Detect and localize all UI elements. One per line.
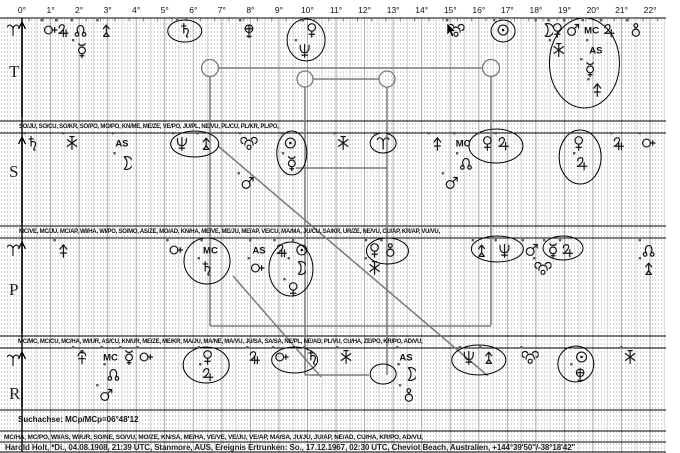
poseidon-icon — [535, 262, 551, 274]
as-label: AS — [399, 353, 412, 364]
graphic-ephemeris-window: 0°1°2°3°4°5°6°7°8°9°10°11°12°13°14°15°16… — [0, 0, 680, 453]
degree-label: 22° — [644, 5, 657, 15]
glyph-marker — [166, 239, 168, 241]
mc-label: MC — [456, 139, 471, 150]
cluster-ring — [168, 20, 202, 42]
degree-label: 5° — [161, 5, 169, 15]
glyph-marker — [333, 132, 335, 134]
degree-grid — [22, 18, 664, 452]
as-label: AS — [589, 46, 602, 57]
glyph-marker — [72, 39, 74, 41]
glyph-marker — [453, 132, 455, 134]
glyph-marker — [586, 39, 588, 41]
vulkanus-icon — [60, 245, 67, 257]
hades-icon — [554, 44, 563, 57]
hades-icon — [370, 262, 379, 275]
glyph-marker — [397, 363, 399, 365]
glyph-marker — [136, 346, 138, 348]
venus-icon — [554, 24, 561, 38]
glyph-marker — [198, 257, 200, 259]
mars-icon — [101, 389, 112, 400]
midpoint-line-progression: MC/MC, MC/CU, MC/HA, WI/UR, AS/CU, KN/UR… — [18, 339, 423, 345]
degree-label: 6° — [189, 5, 197, 15]
glyph-marker — [639, 132, 641, 134]
admetos-icon — [245, 25, 252, 37]
degree-label: 13° — [387, 5, 400, 15]
glyph-marker — [365, 257, 367, 259]
as-label: AS — [252, 246, 265, 257]
row-label-T: T — [9, 62, 20, 81]
glyph-marker — [248, 257, 250, 259]
glyph-marker — [112, 132, 114, 134]
degree-label: 12° — [358, 5, 371, 15]
mc-label: MC — [203, 246, 218, 257]
midpoint-line-radix: MC/HA, MC/PO, WI/AS, WI/UR, SO/NE, SO/VU… — [4, 434, 423, 441]
glyph-marker — [283, 278, 285, 280]
aries-point-icon — [8, 25, 19, 36]
glyph-marker — [41, 19, 43, 21]
degree-label: 0° — [18, 5, 26, 15]
venus-icon — [371, 244, 378, 258]
search-axis-label: Suchachse: MCp/MCp=06°48'12 — [18, 415, 138, 424]
mc-label: MC — [103, 353, 118, 364]
glyph-marker — [600, 19, 602, 21]
glyph-marker — [459, 346, 461, 348]
glyph-marker — [272, 346, 274, 348]
glyph-marker — [493, 19, 495, 21]
glyph-marker — [533, 257, 535, 259]
row-P: PMCAS — [8, 236, 654, 333]
aspect-junction-circle — [379, 71, 395, 87]
glyph-marker — [196, 132, 198, 134]
glyph-marker — [53, 239, 55, 241]
glyph-marker — [442, 172, 444, 174]
glyph-marker — [547, 19, 549, 21]
glyph-marker — [534, 19, 536, 21]
saturn-icon — [182, 24, 189, 37]
cupido-icon — [276, 353, 288, 361]
row-label-P: P — [9, 280, 18, 299]
glyph-marker — [246, 346, 248, 348]
cluster-ring — [559, 130, 601, 184]
degree-label: 19° — [558, 5, 571, 15]
glyph-marker — [559, 239, 561, 241]
glyph-marker — [549, 39, 551, 41]
degree-label: 7° — [218, 5, 226, 15]
aspect-junction-circle — [483, 60, 500, 77]
glyph-marker — [620, 346, 622, 348]
degree-label: 18° — [529, 5, 542, 15]
glyph-marker — [446, 19, 448, 21]
sun-icon — [498, 25, 508, 35]
glyph-marker — [365, 239, 367, 241]
glyph-marker — [572, 346, 574, 348]
chart-canvas[interactable]: 0°1°2°3°4°5°6°7°8°9°10°11°12°13°14°15°16… — [0, 0, 680, 453]
zeus-icon — [103, 25, 109, 36]
midpoint-line-solararc: MC/VE, MC/JU, MC/AP, WI/HA, WI/PO, SO/MO… — [19, 229, 440, 235]
hades-icon — [341, 351, 350, 364]
glyph-marker — [239, 132, 241, 134]
zeus-icon — [479, 245, 485, 256]
glyph-marker — [543, 239, 545, 241]
glyph-marker — [427, 132, 429, 134]
degree-label: 14° — [415, 5, 428, 15]
saturn-icon — [203, 262, 210, 275]
cupido-icon — [170, 246, 182, 254]
cluster-ring — [370, 364, 396, 384]
cupido-icon — [643, 139, 655, 147]
mars-icon — [568, 24, 579, 35]
glyph-marker — [239, 19, 241, 21]
glyph-marker — [101, 346, 103, 348]
glyph-marker — [520, 346, 522, 348]
venus-icon — [484, 137, 491, 151]
glyph-marker — [380, 239, 382, 241]
zeus-icon — [203, 138, 209, 149]
aspect-junction-circle — [202, 60, 219, 77]
poseidon-icon — [241, 137, 257, 149]
glyph-marker — [563, 19, 565, 21]
glyph-marker — [610, 132, 612, 134]
saturn-icon — [29, 137, 36, 150]
zeus-icon — [486, 352, 492, 363]
glyph-marker — [176, 19, 178, 21]
degree-label: 21° — [615, 5, 628, 15]
cupido-icon — [252, 264, 264, 272]
glyph-marker — [200, 239, 202, 241]
row-label-S: S — [9, 162, 18, 181]
moon-icon — [124, 157, 133, 170]
glyph-marker — [302, 19, 304, 21]
zeus-icon — [646, 263, 652, 274]
glyph-marker — [569, 132, 571, 134]
glyph-marker — [582, 19, 584, 21]
glyph-marker — [336, 346, 338, 348]
glyph-marker — [570, 363, 572, 365]
node-icon — [643, 246, 654, 257]
glyph-marker — [396, 346, 398, 348]
cluster-ring — [558, 346, 594, 382]
chart-data-line: Harold Holt, *Di., 04.08.1908, 21:39 UTC… — [5, 443, 575, 452]
glyph-marker — [172, 132, 174, 134]
aspect-junction-circle — [297, 71, 313, 87]
row-label-R: R — [9, 384, 21, 403]
degree-label: 2° — [75, 5, 83, 15]
glyph-marker — [71, 19, 73, 21]
node-icon — [461, 159, 472, 170]
glyph-marker — [119, 346, 121, 348]
glyph-marker — [587, 78, 589, 80]
apollon-icon — [250, 352, 259, 364]
node-icon — [108, 370, 119, 381]
degree-label: 8° — [246, 5, 254, 15]
row-R: RMCAS — [8, 345, 635, 407]
degree-label: 20° — [587, 5, 600, 15]
glyph-marker — [479, 346, 481, 348]
mc-label: MC — [584, 26, 599, 37]
glyph-marker — [249, 239, 251, 241]
mars-icon — [242, 177, 253, 188]
moon-icon — [298, 262, 307, 275]
row-S: SASMC — [9, 129, 655, 223]
glyph-marker — [626, 19, 628, 21]
hades-icon — [625, 351, 634, 364]
band-separators — [0, 18, 666, 452]
mars-icon — [446, 177, 457, 188]
glyph-marker — [580, 58, 582, 60]
glyph-marker — [288, 257, 290, 259]
admetos-icon — [576, 369, 583, 381]
vulkanus-icon — [434, 138, 441, 150]
hades-icon — [339, 137, 348, 150]
degree-label: 10° — [301, 5, 314, 15]
degree-label: 9° — [275, 5, 283, 15]
glyph-marker — [23, 132, 25, 134]
glyph-marker — [96, 384, 98, 386]
ballring-icon — [405, 389, 412, 402]
moon-icon — [408, 368, 417, 381]
degree-label: 4° — [132, 5, 140, 15]
glyph-marker — [639, 257, 641, 259]
degree-label: 3° — [104, 5, 112, 15]
mercury-icon — [126, 351, 133, 365]
glyph-marker — [399, 384, 401, 386]
degree-label: 11° — [330, 5, 342, 15]
mercury-icon — [288, 157, 295, 171]
degree-label: 17° — [501, 5, 514, 15]
glyph-marker — [472, 239, 474, 241]
glyph-marker — [62, 132, 64, 134]
apollon-icon — [59, 25, 68, 37]
glyph-marker — [373, 132, 375, 134]
as-label: AS — [115, 139, 128, 150]
glyph-marker — [456, 152, 458, 154]
glyph-marker — [55, 19, 57, 21]
glyph-marker — [199, 363, 201, 365]
moon-icon — [545, 24, 554, 37]
glyph-marker — [72, 346, 74, 348]
glyph-marker — [273, 239, 275, 241]
vulkanus-icon — [594, 84, 601, 96]
glyph-marker — [198, 346, 200, 348]
glyph-marker — [639, 239, 641, 241]
glyph-marker — [238, 172, 240, 174]
glyph-marker — [494, 239, 496, 241]
glyph-marker — [522, 239, 524, 241]
glyph-marker — [477, 132, 479, 134]
glyph-marker — [494, 132, 496, 134]
glyph-marker — [295, 39, 297, 41]
venus-icon — [308, 24, 315, 38]
glyph-marker — [573, 152, 575, 154]
degree-label: 15° — [444, 5, 457, 15]
sun-icon — [285, 138, 295, 148]
glyph-marker — [103, 363, 105, 365]
hades-icon — [67, 137, 76, 150]
midpoint-line-transit: SO/JU, SO/CU, SO/KR, SO/PO, MO/PO, KN/ME… — [19, 124, 279, 130]
degree-ruler: 0°1°2°3°4°5°6°7°8°9°10°11°12°13°14°15°16… — [18, 5, 657, 15]
node-icon — [75, 26, 86, 37]
aries-point-icon — [8, 245, 19, 256]
glyph-marker — [96, 19, 98, 21]
degree-label: 1° — [46, 5, 54, 15]
glyph-marker — [282, 152, 284, 154]
sun-icon — [577, 352, 587, 362]
aries-point-icon — [8, 355, 19, 366]
degree-label: 16° — [472, 5, 485, 15]
glyph-marker — [292, 239, 294, 241]
glyph-marker — [280, 132, 282, 134]
glyph-marker — [303, 346, 305, 348]
glyph-marker — [113, 152, 115, 154]
